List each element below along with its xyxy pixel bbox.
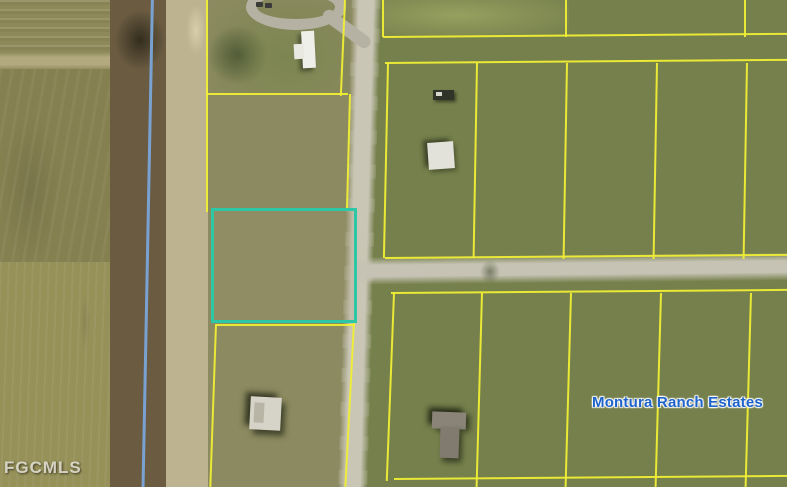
parked-car bbox=[256, 2, 263, 7]
highlighted-parcel-outline bbox=[211, 208, 357, 323]
shed-northeast bbox=[433, 90, 454, 100]
farm-track bbox=[0, 52, 119, 70]
aerial-parcel-map[interactable]: Montura Ranch Estates FGCMLS bbox=[0, 0, 787, 487]
tree-line bbox=[110, 0, 172, 487]
parcel-line bbox=[565, 0, 567, 37]
area-name-label: Montura Ranch Estates bbox=[592, 394, 763, 411]
farmland-west bbox=[0, 0, 119, 487]
farm-rows bbox=[0, 0, 119, 54]
parked-car bbox=[265, 3, 272, 8]
house-roof-northeast bbox=[427, 141, 455, 170]
parcel-line bbox=[382, 0, 384, 37]
parcel-line bbox=[206, 93, 348, 95]
parcel-line bbox=[206, 0, 208, 212]
road-tree-shadows bbox=[430, 258, 787, 284]
house-roof-northwest-wing bbox=[294, 44, 305, 60]
grass-field-north bbox=[384, 0, 569, 38]
house-roof-southwest bbox=[249, 396, 282, 431]
mls-watermark: FGCMLS bbox=[4, 458, 82, 478]
farm-field-mid bbox=[0, 69, 119, 264]
farm-field-south bbox=[0, 262, 119, 487]
parcel-line bbox=[216, 324, 355, 326]
parcel-line bbox=[744, 0, 746, 37]
house-roof-southeast-wing bbox=[439, 427, 459, 459]
